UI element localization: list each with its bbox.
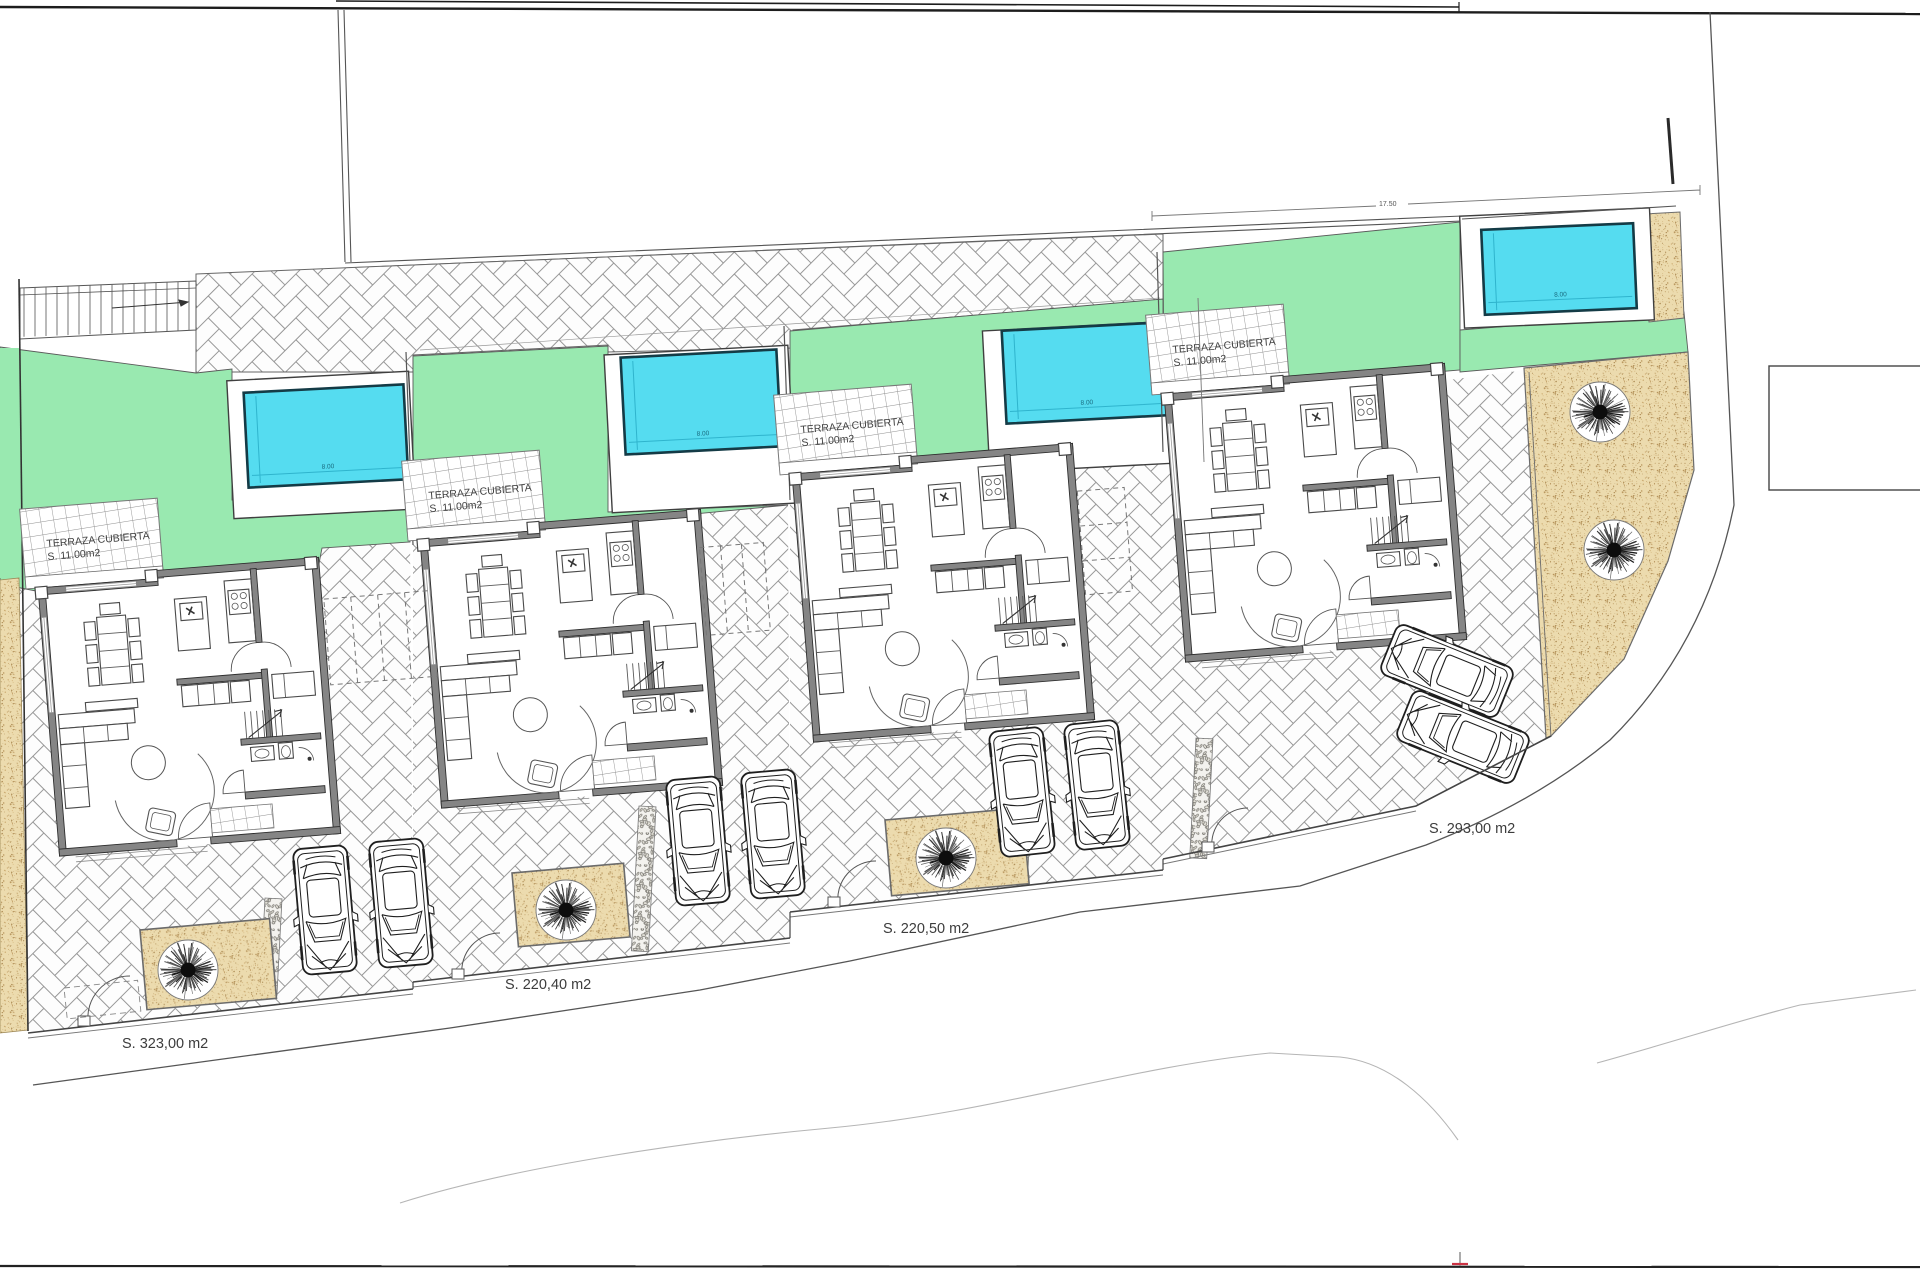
svg-text:8.00: 8.00 [696, 430, 709, 438]
svg-text:17.50: 17.50 [1379, 201, 1397, 208]
svg-text:S. 323,00 m2: S. 323,00 m2 [122, 1036, 208, 1052]
svg-text:S. 220,40 m2: S. 220,40 m2 [505, 977, 591, 993]
svg-text:8.00: 8.00 [1554, 291, 1567, 299]
svg-text:S. 220,50 m2: S. 220,50 m2 [883, 921, 969, 937]
svg-text:8.00: 8.00 [321, 463, 334, 471]
svg-text:S. 293,00 m2: S. 293,00 m2 [1429, 821, 1515, 837]
svg-text:8.00: 8.00 [1080, 399, 1093, 407]
